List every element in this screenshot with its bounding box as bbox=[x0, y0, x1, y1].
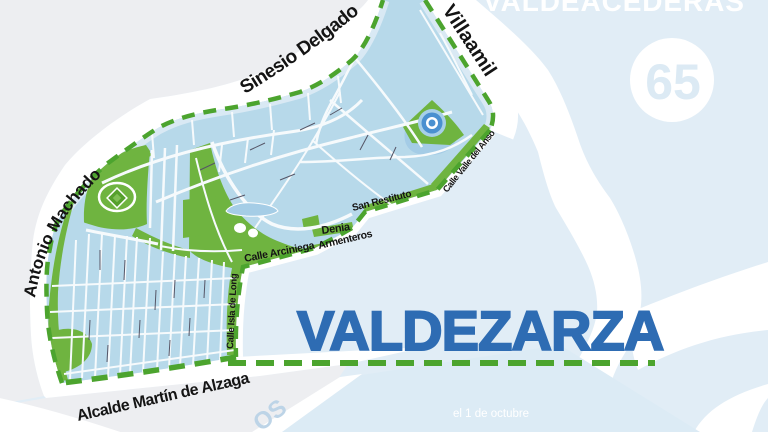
svg-text:65: 65 bbox=[645, 54, 701, 110]
svg-text:el 1 de octubre: el 1 de octubre bbox=[453, 408, 529, 420]
svg-text:VALDEACEDERAS: VALDEACEDERAS bbox=[483, 0, 745, 17]
svg-text:VALDEZARZA: VALDEZARZA bbox=[297, 299, 663, 362]
